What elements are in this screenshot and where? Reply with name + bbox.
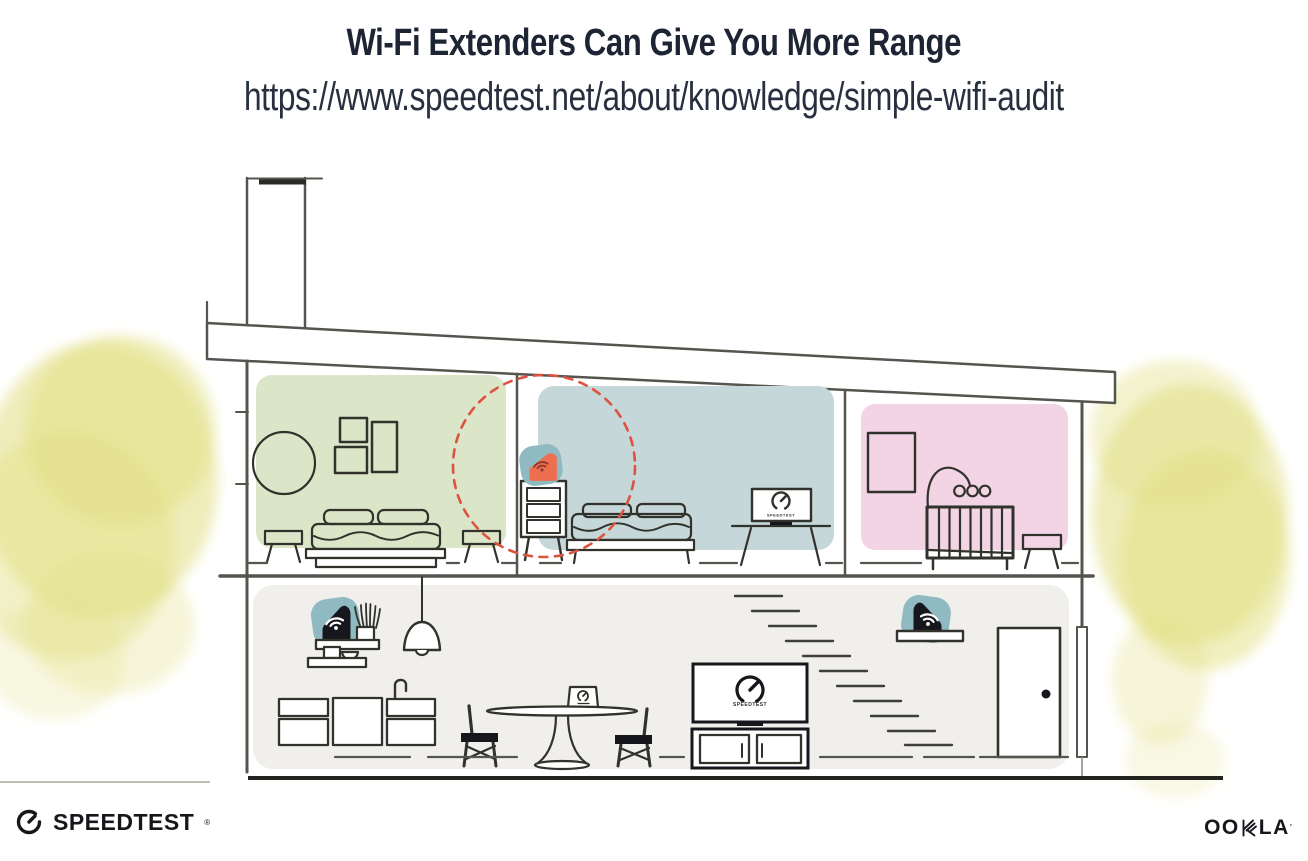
speedtest-gauge-icon [14,806,44,838]
right-wall-column [1077,627,1087,757]
nursery-bg [861,404,1068,550]
bedroom-tv-label: SPEEDTEST [767,513,795,518]
living-tv-label: SPEEDTEST [733,702,767,708]
shelf [308,658,366,667]
cup [324,647,340,658]
tree-left [0,335,218,720]
door-knob [1042,690,1051,699]
infographic-page: Wi-Fi Extenders Can Give You More Range … [0,0,1308,861]
speedtest-logo: SPEEDTEST® [14,806,210,838]
registered-mark: ® [204,818,210,827]
tree-right [1090,360,1290,798]
lower-floor: SPEEDTEST [253,578,1069,770]
speedtest-wordmark: SPEEDTEST [53,809,194,836]
trademark-tick: ’ [1290,823,1292,834]
shelf [897,631,963,641]
tv-cabinet [692,729,808,768]
ookla-wordmark-left: OO [1204,816,1240,840]
house-illustration: SPEEDTEST [0,0,1308,861]
kitchen-cabinets [279,698,435,745]
dresser [521,481,566,560]
ookla-k-icon [1241,819,1258,837]
chimney [247,178,322,328]
ookla-wordmark-right: LA [1259,816,1290,840]
ookla-logo: OO LA’ [1204,816,1292,840]
living-room-tv: SPEEDTEST [692,664,808,768]
entry-door [998,628,1060,757]
